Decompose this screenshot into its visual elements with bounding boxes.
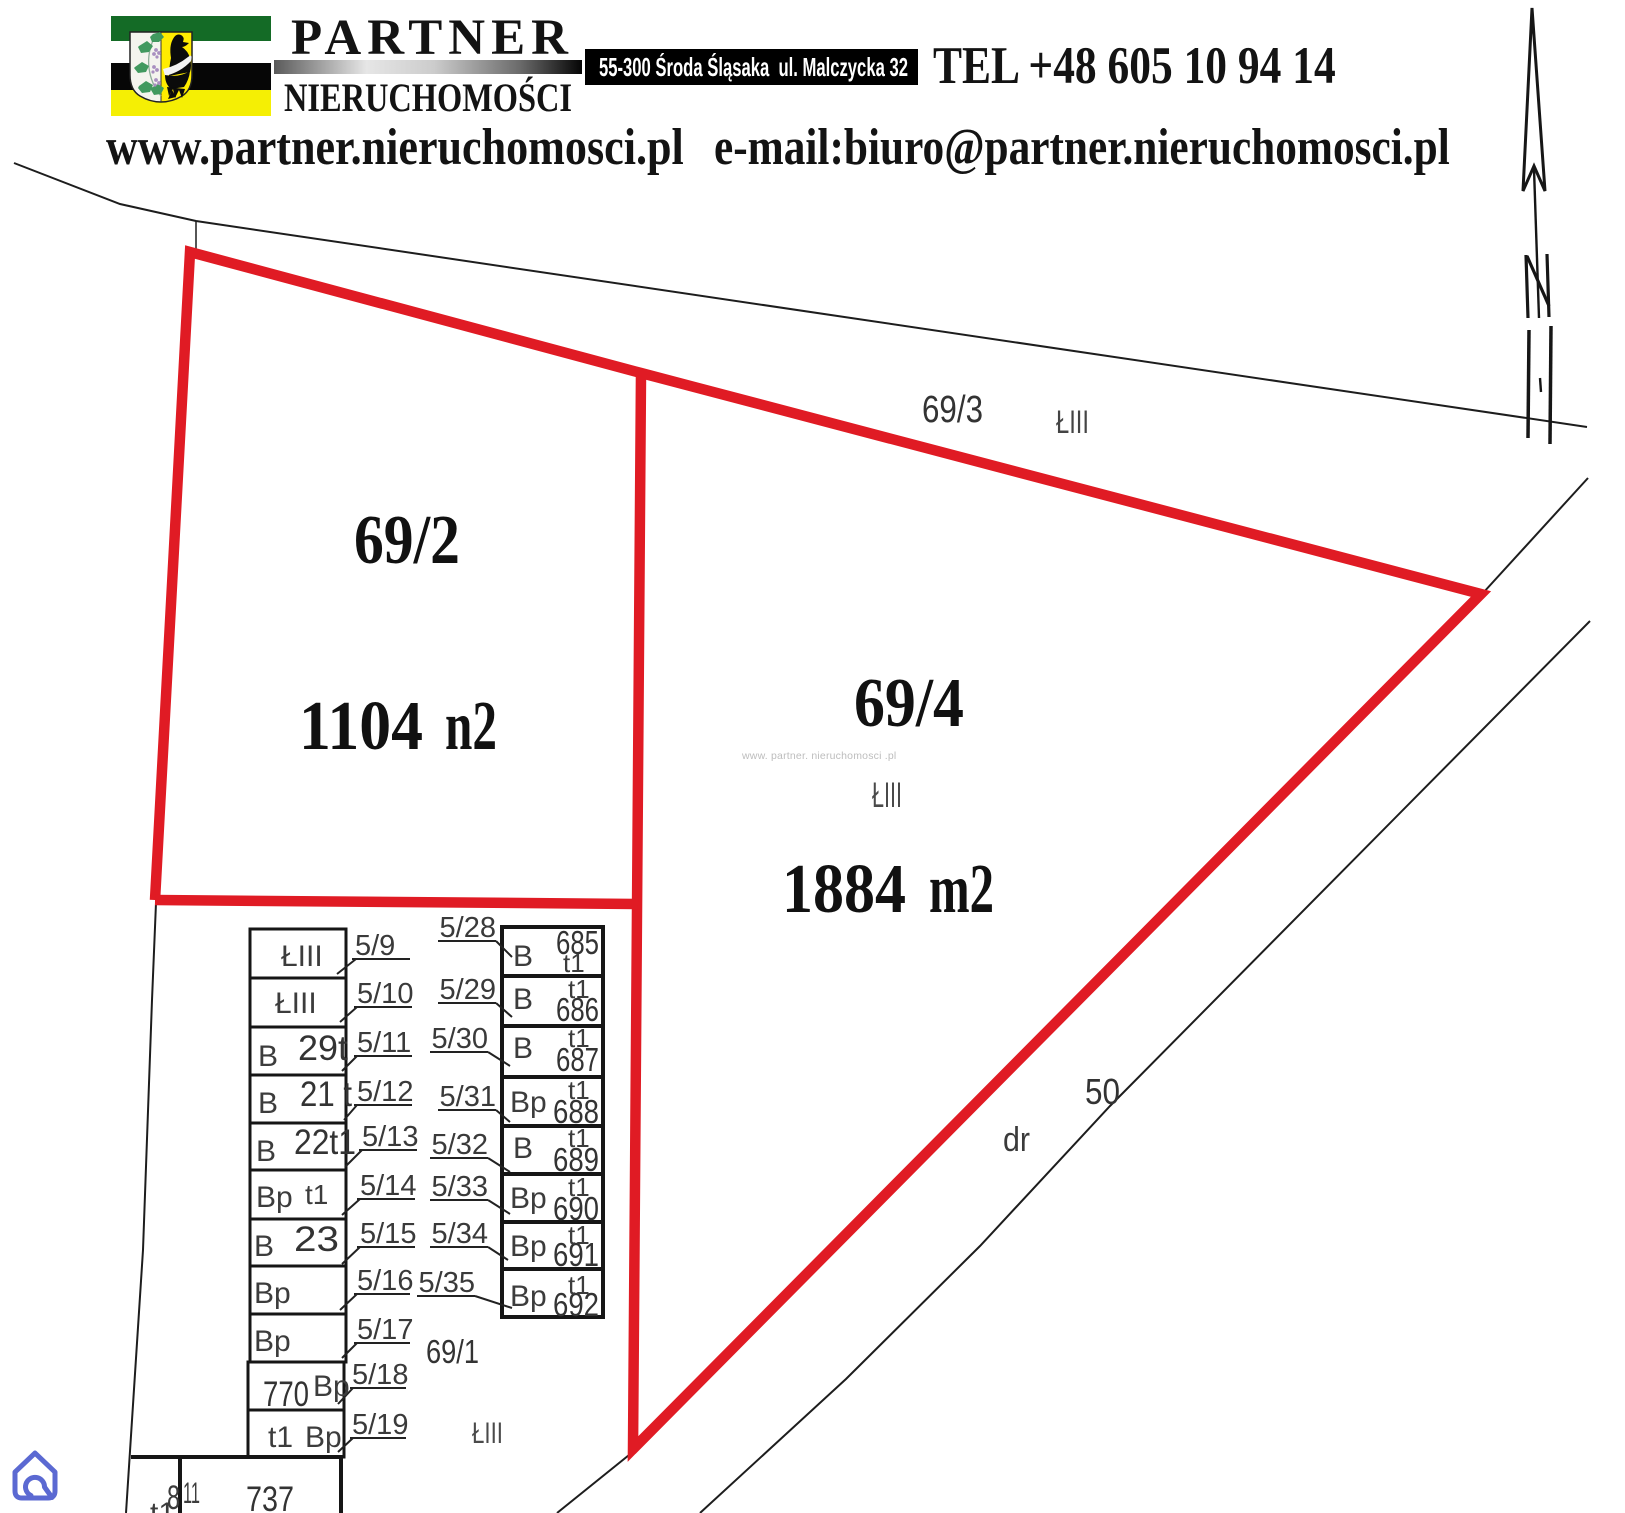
svg-text:23: 23 bbox=[294, 1220, 339, 1259]
svg-text:Bp: Bp bbox=[510, 1086, 547, 1119]
svg-text:50: 50 bbox=[1085, 1071, 1120, 1112]
svg-text:B: B bbox=[513, 940, 533, 973]
svg-text:n2: n2 bbox=[445, 688, 497, 765]
svg-text:770: 770 bbox=[263, 1375, 309, 1414]
svg-text:69/4: 69/4 bbox=[854, 665, 964, 742]
svg-text:t1: t1 bbox=[568, 1023, 590, 1053]
svg-text:5/28: 5/28 bbox=[440, 912, 496, 944]
svg-text:B: B bbox=[258, 1040, 278, 1073]
svg-text:Bp: Bp bbox=[510, 1230, 547, 1263]
svg-text:t1: t1 bbox=[568, 1075, 590, 1105]
svg-text:11: 11 bbox=[183, 1477, 200, 1510]
svg-text:69/3: 69/3 bbox=[922, 389, 983, 431]
svg-text:t1: t1 bbox=[305, 1179, 328, 1210]
svg-text:5/16: 5/16 bbox=[357, 1265, 413, 1297]
svg-text:5/32: 5/32 bbox=[432, 1129, 488, 1161]
svg-text:ŁIII: ŁIII bbox=[275, 987, 317, 1020]
svg-text:Bp: Bp bbox=[313, 1370, 350, 1403]
svg-text:5/30: 5/30 bbox=[432, 1023, 488, 1055]
svg-text:5/34: 5/34 bbox=[432, 1218, 488, 1250]
svg-text:1884: 1884 bbox=[782, 851, 906, 928]
svg-text:ŁIII: ŁIII bbox=[281, 940, 323, 973]
svg-text:Bp: Bp bbox=[254, 1325, 291, 1358]
svg-text:5/12: 5/12 bbox=[357, 1076, 413, 1108]
svg-text:ŁIII: ŁIII bbox=[1056, 404, 1089, 440]
svg-text:t1: t1 bbox=[568, 1172, 590, 1202]
svg-text:69/2: 69/2 bbox=[354, 502, 460, 579]
svg-text:5/10: 5/10 bbox=[357, 978, 413, 1010]
svg-text:5/17: 5/17 bbox=[357, 1314, 413, 1346]
svg-text:5/9: 5/9 bbox=[355, 930, 395, 962]
svg-text:5/14: 5/14 bbox=[360, 1170, 416, 1202]
svg-text:ŁIII: ŁIII bbox=[472, 1417, 503, 1450]
svg-text:t1: t1 bbox=[568, 1123, 590, 1153]
svg-text:m2: m2 bbox=[929, 851, 994, 928]
svg-text:t1: t1 bbox=[150, 1497, 175, 1513]
svg-text:t1: t1 bbox=[268, 1421, 293, 1454]
svg-text:t1: t1 bbox=[568, 974, 590, 1004]
svg-text:B: B bbox=[513, 1132, 533, 1165]
svg-text:t1: t1 bbox=[568, 1220, 590, 1250]
svg-text:5/15: 5/15 bbox=[360, 1218, 416, 1250]
svg-text:69/1: 69/1 bbox=[426, 1333, 479, 1370]
svg-text:5/18: 5/18 bbox=[352, 1359, 408, 1391]
svg-text:Bp: Bp bbox=[510, 1280, 547, 1313]
svg-text:t1: t1 bbox=[568, 1270, 590, 1300]
svg-text:Bp: Bp bbox=[305, 1421, 342, 1454]
svg-text:5/13: 5/13 bbox=[362, 1121, 418, 1153]
svg-text:5/33: 5/33 bbox=[432, 1171, 488, 1203]
svg-text:B: B bbox=[256, 1135, 276, 1168]
svg-text:21 t: 21 t bbox=[300, 1075, 352, 1114]
svg-text:22t1: 22t1 bbox=[294, 1123, 356, 1162]
svg-text:B: B bbox=[254, 1230, 274, 1263]
svg-text:1104: 1104 bbox=[299, 688, 423, 765]
svg-text:Bp: Bp bbox=[254, 1277, 291, 1310]
svg-text:Bp: Bp bbox=[256, 1181, 293, 1214]
svg-text:5/19: 5/19 bbox=[352, 1409, 408, 1441]
svg-text:5/35: 5/35 bbox=[419, 1267, 475, 1299]
svg-text:737: 737 bbox=[246, 1480, 294, 1513]
svg-text:5/11: 5/11 bbox=[357, 1027, 411, 1059]
svg-text:B: B bbox=[258, 1087, 278, 1120]
svg-text:dr: dr bbox=[1003, 1121, 1030, 1159]
svg-text:5/31: 5/31 bbox=[440, 1081, 496, 1113]
svg-text:29t: 29t bbox=[298, 1029, 348, 1068]
svg-text:5/29: 5/29 bbox=[440, 974, 496, 1006]
svg-text:Bp: Bp bbox=[510, 1182, 547, 1215]
svg-text:B: B bbox=[513, 983, 533, 1016]
svg-text:B: B bbox=[513, 1032, 533, 1065]
svg-text:ŁIII: ŁIII bbox=[872, 776, 902, 815]
